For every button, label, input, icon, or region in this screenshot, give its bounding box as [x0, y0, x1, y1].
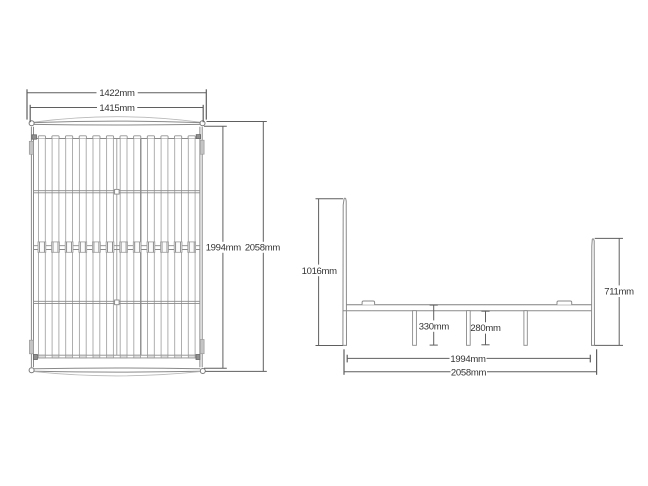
- svg-text:1994mm: 1994mm: [450, 354, 486, 365]
- svg-text:280mm: 280mm: [470, 323, 501, 334]
- svg-text:1415mm: 1415mm: [99, 103, 135, 114]
- svg-text:330mm: 330mm: [419, 321, 450, 332]
- svg-text:711mm: 711mm: [604, 286, 634, 297]
- svg-text:2058mm: 2058mm: [451, 367, 487, 378]
- svg-text:2058mm: 2058mm: [245, 243, 281, 254]
- svg-text:1422mm: 1422mm: [99, 88, 135, 99]
- svg-text:1994mm: 1994mm: [206, 243, 242, 254]
- svg-text:1016mm: 1016mm: [302, 266, 338, 277]
